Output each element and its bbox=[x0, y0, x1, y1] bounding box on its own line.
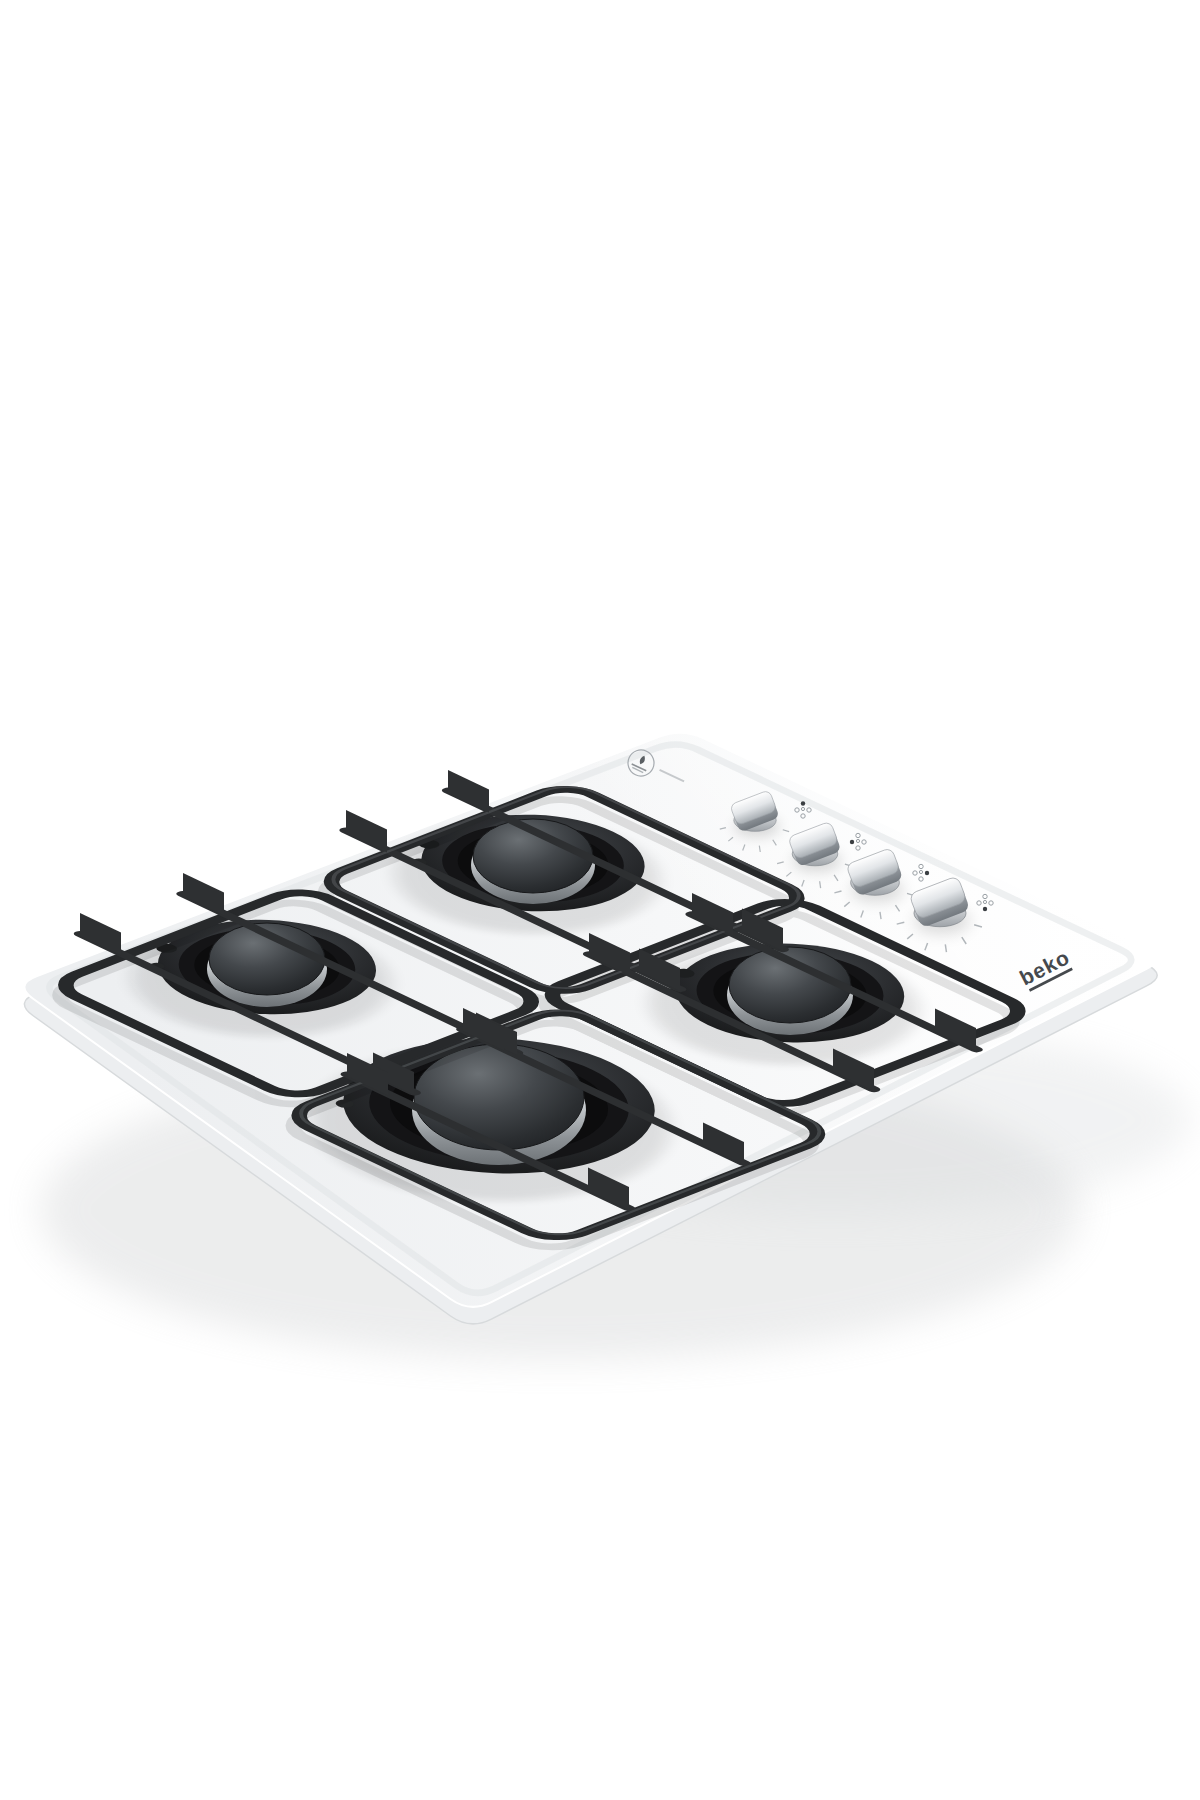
gas-hob-product-photo: beko bbox=[0, 0, 1200, 1800]
hob-scene: beko bbox=[0, 0, 1200, 1800]
